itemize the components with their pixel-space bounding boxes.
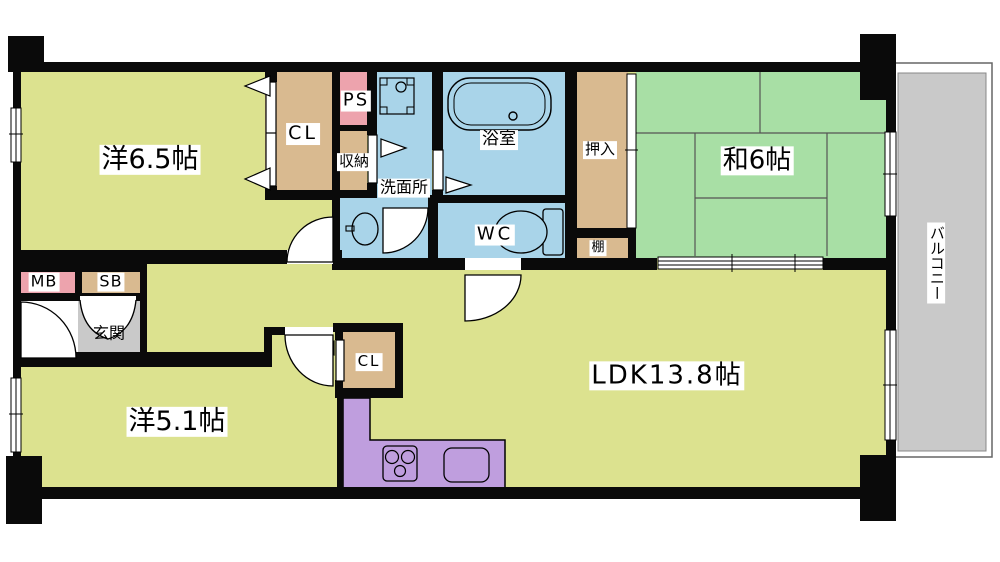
room-label-bathroom: 浴室: [480, 130, 518, 150]
floorplan-drawing: [0, 0, 1000, 562]
sliding-door-japanese-ldk: [658, 257, 823, 269]
room-label-meter-box: MB: [29, 273, 60, 292]
room-label-balcony: バルコニー: [927, 223, 945, 304]
closet-bottom-door: [336, 340, 344, 381]
room-label-oshiire: 押入: [583, 141, 617, 159]
room-label-washroom: 洗面所: [378, 179, 430, 198]
room-label-ldk: LDK13.8帖: [589, 361, 744, 390]
room-label-western-5-1: 洋5.1帖: [127, 407, 228, 437]
room-label-wc: WC: [475, 225, 515, 246]
sliding-door-oshiire: [627, 74, 636, 228]
room-label-shelf: 棚: [589, 240, 606, 256]
room-label-entrance: 玄関: [91, 325, 127, 344]
floorplan: 洋6.5帖 CL PS 収納 洗面所 浴室 押入 和6帖 WC 棚 MB SB …: [0, 0, 1000, 562]
room-label-shoe-box: SB: [97, 273, 124, 292]
room-label-western-6-5: 洋6.5帖: [100, 145, 201, 175]
room-label-japanese-6: 和6帖: [721, 146, 794, 175]
room-label-pipe-space: PS: [341, 91, 371, 112]
room-label-closet-top: CL: [286, 123, 320, 145]
bathroom-door: [433, 150, 443, 190]
room-label-storage: 収納: [337, 153, 371, 171]
room-label-closet-bottom: CL: [356, 353, 383, 371]
